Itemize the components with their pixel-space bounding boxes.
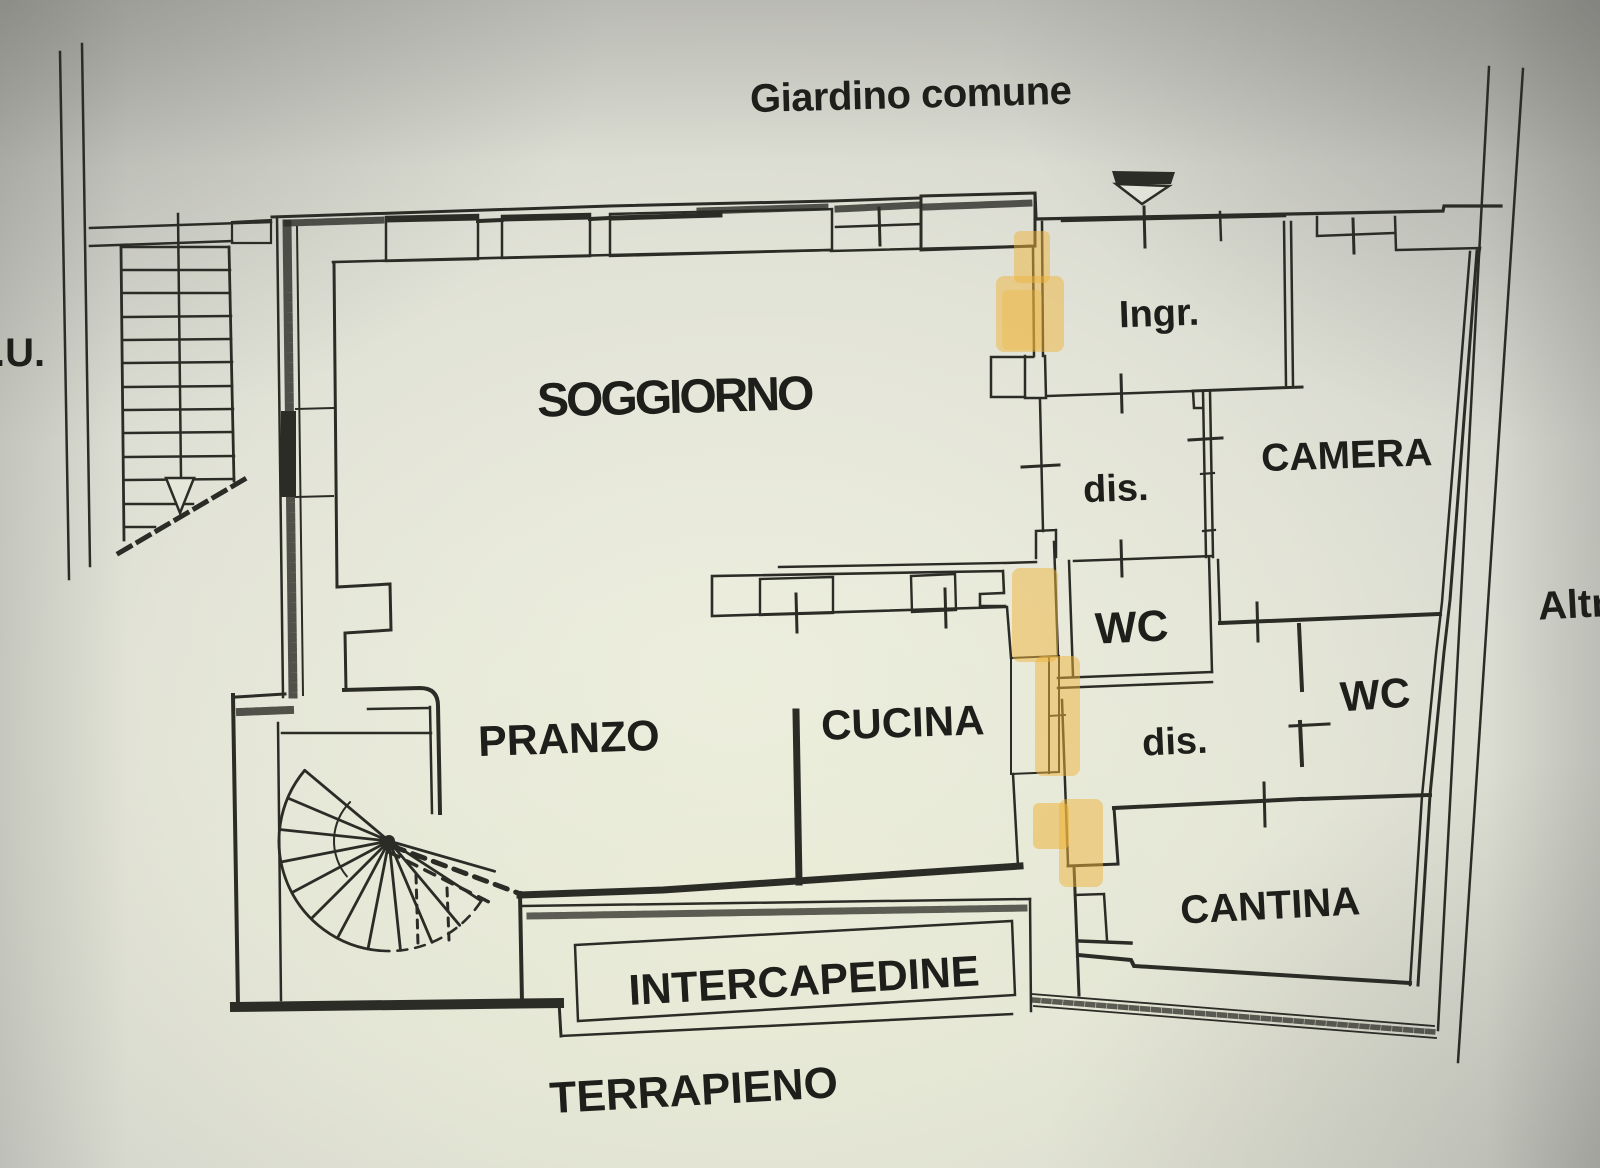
svg-text:.U.: .U. <box>0 331 45 375</box>
svg-text:dis.: dis. <box>1141 720 1208 765</box>
svg-text:CAMERA: CAMERA <box>1260 431 1433 480</box>
svg-text:CANTINA: CANTINA <box>1179 879 1361 932</box>
svg-text:CUCINA: CUCINA <box>820 696 985 749</box>
svg-text:PRANZO: PRANZO <box>477 712 660 766</box>
svg-text:Altra: Altra <box>1537 580 1600 629</box>
svg-text:Giardino comune: Giardino comune <box>749 69 1071 121</box>
svg-text:WC: WC <box>1339 669 1412 721</box>
svg-text:WC: WC <box>1094 601 1169 653</box>
svg-text:dis.: dis. <box>1082 467 1149 511</box>
svg-text:Ingr.: Ingr. <box>1118 292 1200 337</box>
svg-text:SOGGIORNO: SOGGIORNO <box>536 367 813 428</box>
